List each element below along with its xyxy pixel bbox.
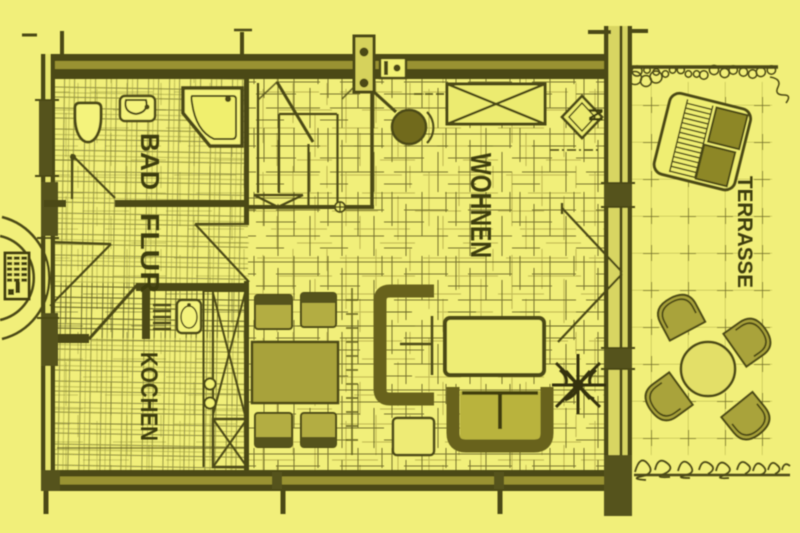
- svg-text:WOHNEN: WOHNEN: [464, 153, 496, 258]
- svg-text:FLUR: FLUR: [135, 213, 165, 293]
- svg-text:KOCHEN: KOCHEN: [135, 352, 162, 441]
- svg-text:BAD: BAD: [135, 133, 165, 190]
- svg-text:TERRASSE: TERRASSE: [733, 176, 756, 288]
- svg-text:N: N: [584, 108, 605, 122]
